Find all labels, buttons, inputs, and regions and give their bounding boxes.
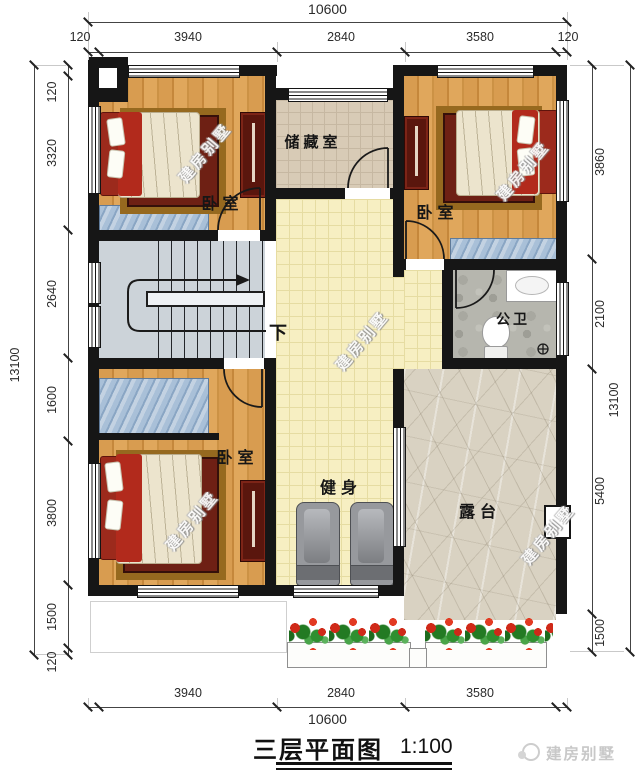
dim-left-seg: 3800 (45, 483, 59, 543)
dim-top-overall: 10600 (88, 1, 567, 17)
room-label-bedroom-top-right: 卧室 (395, 199, 480, 223)
dim-bottom-overall: 10600 (88, 711, 567, 727)
floor-plan-sheet: 卧室 储藏室 卧室 卧室 健身 露台 公卫 下 建房别墅 建房别墅 建房别墅 建… (0, 0, 640, 773)
title-underline (276, 768, 452, 770)
dim-top-seg: 3940 (158, 30, 218, 44)
dim-right-seg: 2100 (593, 284, 607, 344)
title-underline (276, 762, 452, 765)
room-label-terrace: 露台 (442, 498, 518, 522)
room-label-gym: 健身 (303, 474, 379, 498)
dim-left-seg: 2640 (45, 264, 59, 324)
door-arc-bedroom-top-right (406, 221, 444, 259)
dim-left-overall: 13100 (8, 335, 22, 395)
dim-top-seg: 2840 (311, 30, 371, 44)
dim-line (630, 65, 631, 652)
dim-right-seg: 5400 (593, 461, 607, 521)
door-arc-bedroom-bottom-left (224, 369, 262, 407)
dim-bottom-seg: 3580 (420, 686, 540, 700)
dim-line (34, 65, 35, 655)
plan-annotations (0, 0, 640, 773)
dim-top-seg: 3580 (450, 30, 510, 44)
dim-left-seg: 1600 (45, 370, 59, 430)
stair-direction-line (128, 280, 266, 331)
brand-logo-text: 建房别墅 (546, 742, 616, 764)
dim-left-seg: 3320 (45, 123, 59, 183)
room-label-storage: 储藏室 (263, 131, 363, 152)
room-label-bedroom-bottom-left: 卧室 (195, 444, 280, 468)
brand-logo-icon-dot (518, 751, 526, 759)
dim-right-overall: 13100 (607, 370, 621, 430)
dim-top-seg: 120 (58, 30, 102, 44)
dim-line (88, 52, 567, 53)
dim-left-seg: 120 (45, 632, 59, 692)
dim-line (88, 707, 567, 708)
stairs-down-label: 下 (266, 319, 290, 345)
dim-right-seg: 3860 (593, 132, 607, 192)
sheet-scale: 1:100 (400, 735, 453, 759)
dim-top-seg: 120 (546, 30, 590, 44)
stair-arrow-head (236, 274, 250, 286)
sheet-title: 三层平面图 (253, 730, 383, 765)
room-label-bedroom-top-left: 卧室 (180, 190, 265, 214)
dim-right-seg: 1500 (593, 603, 607, 663)
dim-left-seg: 120 (45, 62, 59, 122)
dim-line (88, 22, 567, 23)
dim-bottom-seg: 3940 (128, 686, 248, 700)
dim-bottom-seg: 2840 (281, 686, 401, 700)
door-arc-bathroom (456, 270, 494, 308)
door-arc-storage (348, 148, 388, 188)
room-label-bathroom: 公卫 (482, 309, 544, 329)
